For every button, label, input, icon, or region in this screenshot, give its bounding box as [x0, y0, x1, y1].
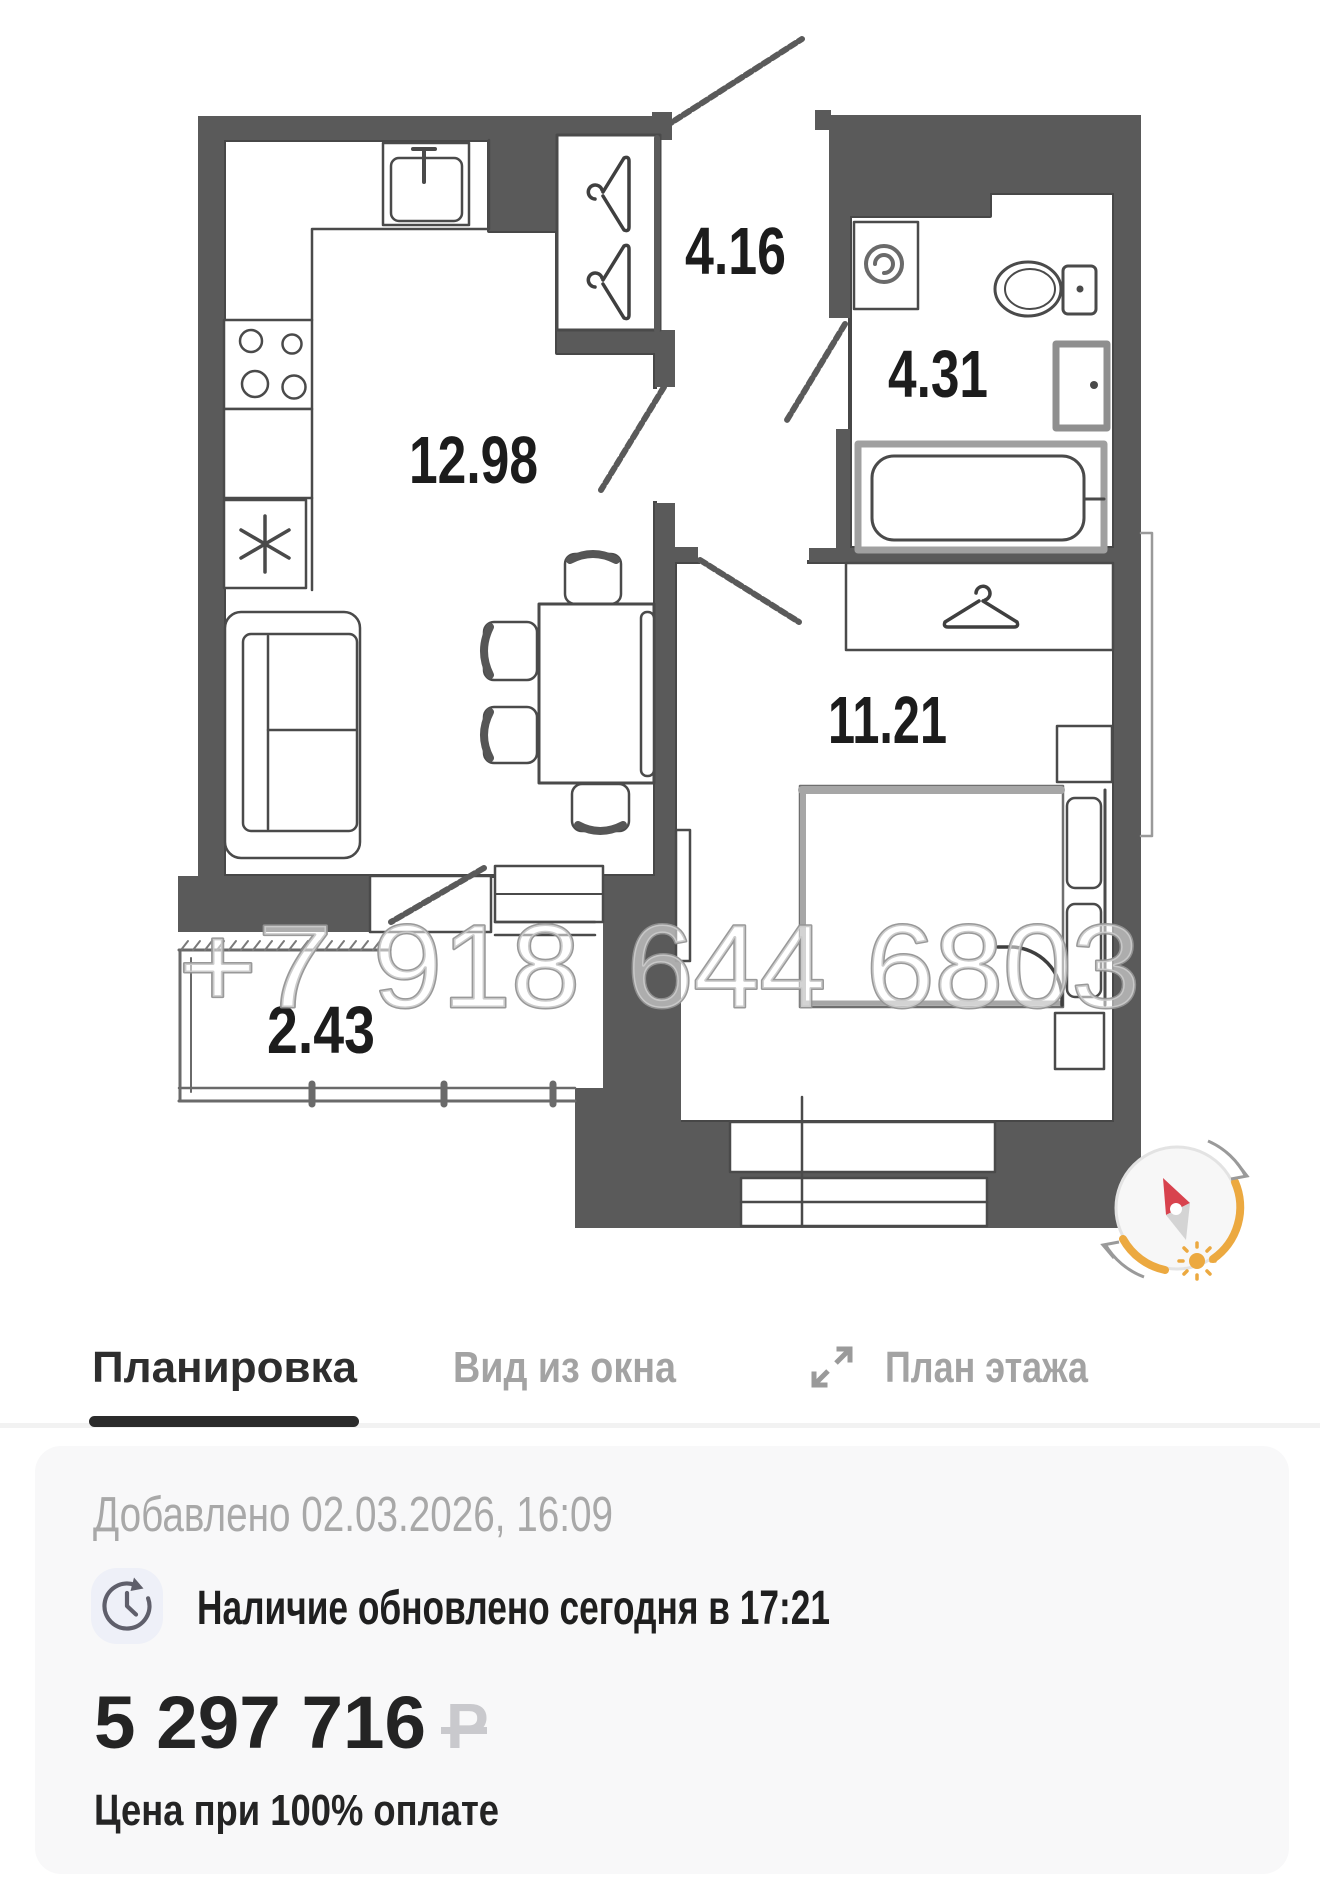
svg-text:918: 918 — [373, 901, 580, 1033]
svg-text:Добавлено 02.03.2026, 16:09: Добавлено 02.03.2026, 16:09 — [93, 1488, 613, 1542]
svg-text:4.31: 4.31 — [888, 337, 988, 412]
svg-text:Цена при 100% оплате: Цена при 100% оплате — [94, 1786, 499, 1835]
svg-text:644: 644 — [627, 901, 826, 1033]
svg-text:P: P — [446, 1690, 489, 1762]
svg-text:11.21: 11.21 — [828, 683, 947, 758]
svg-text:5 297 716: 5 297 716 — [94, 1681, 426, 1764]
svg-text:4.16: 4.16 — [685, 214, 786, 289]
svg-text:Планировка: Планировка — [92, 1343, 358, 1392]
svg-text:Наличие обновлено сегодня в 17: Наличие обновлено сегодня в 17:21 — [197, 1582, 830, 1635]
svg-text:План этажа: План этажа — [885, 1343, 1088, 1392]
svg-text:Вид из окна: Вид из окна — [453, 1343, 676, 1392]
svg-text:+7: +7 — [178, 901, 333, 1033]
svg-text:6803: 6803 — [866, 901, 1140, 1033]
svg-text:12.98: 12.98 — [409, 423, 538, 498]
